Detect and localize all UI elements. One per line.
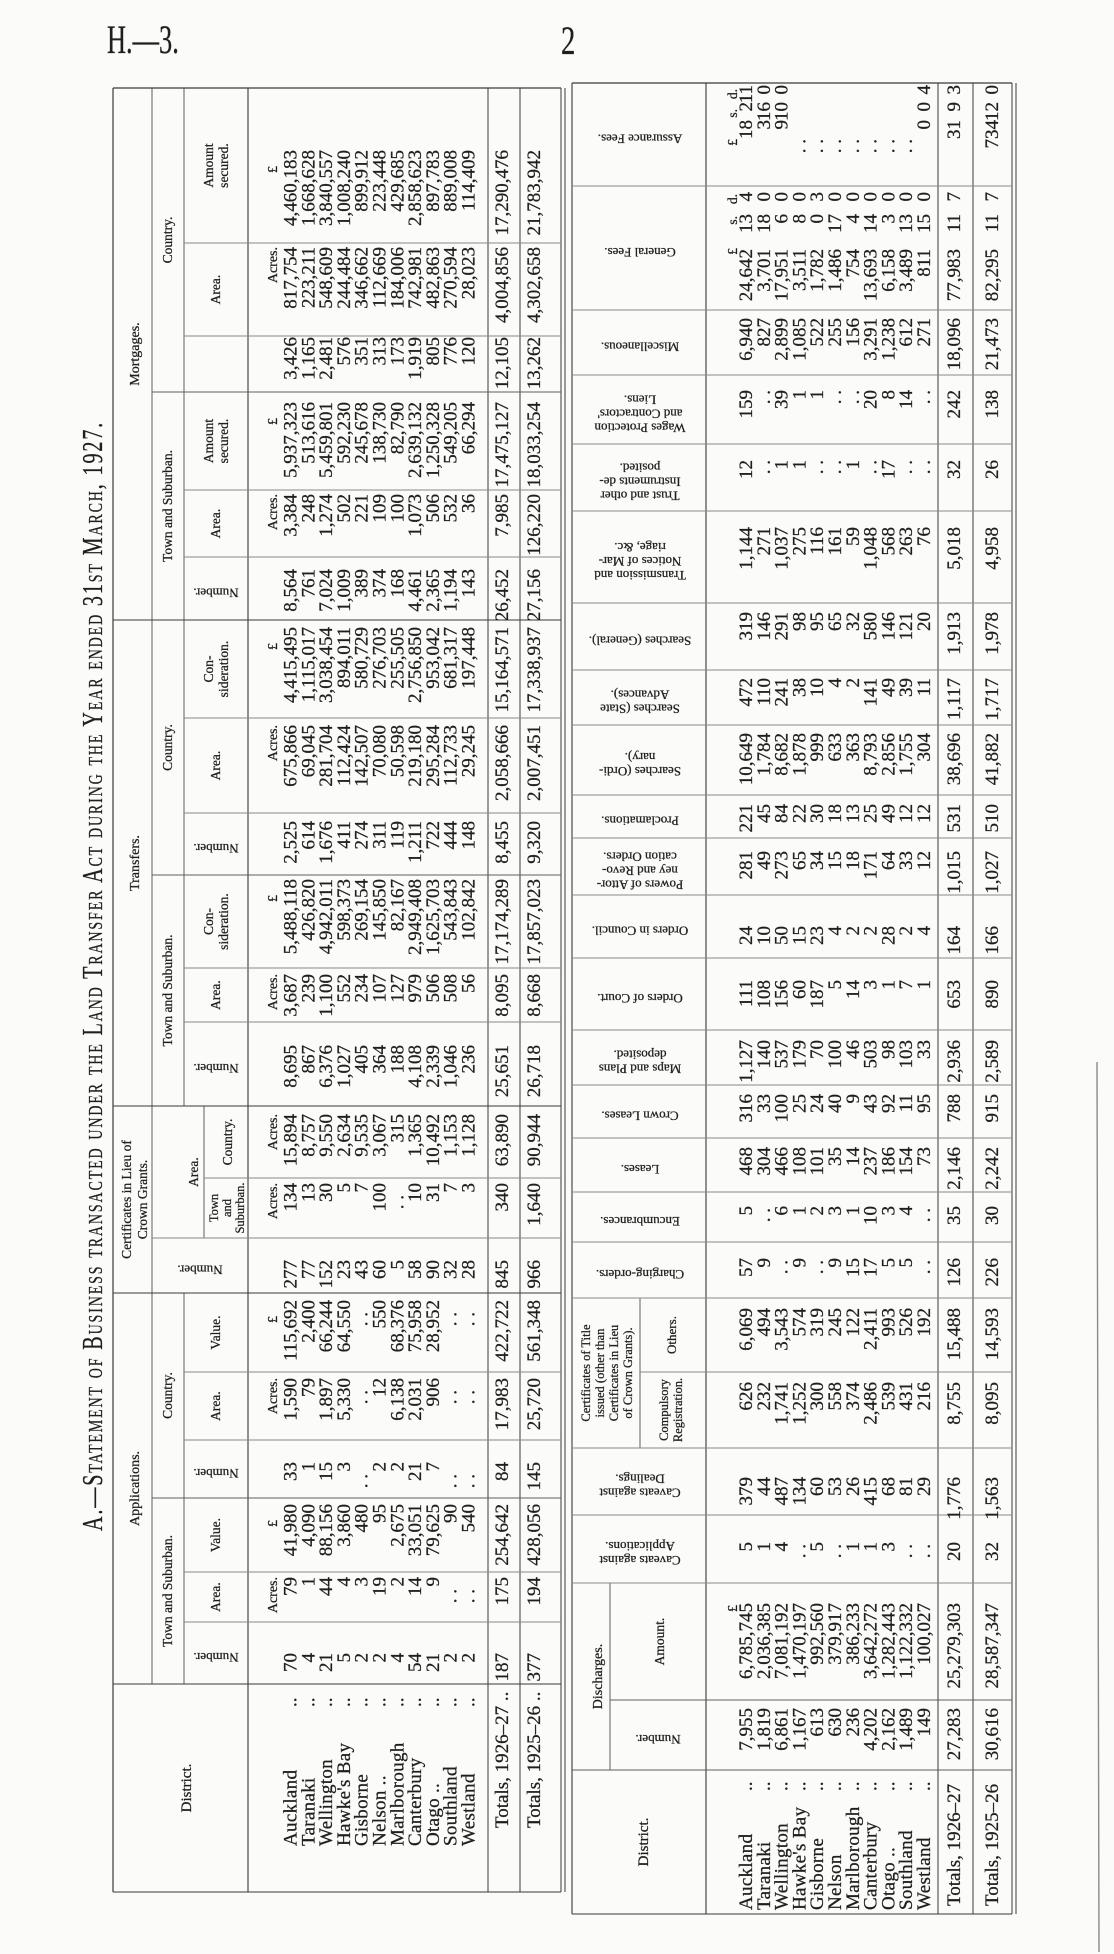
svg-text:27,156: 27,156 <box>524 569 545 621</box>
svg-text:2,936: 2,936 <box>944 1040 965 1083</box>
svg-text:Amount.: Amount. <box>652 1618 667 1666</box>
svg-text:Con-: Con- <box>201 907 216 935</box>
svg-text:Area.: Area. <box>208 509 223 539</box>
svg-text:166: 166 <box>982 926 1003 955</box>
svg-text:A.—Statement of Business trans: A.—Statement of Business transacted unde… <box>78 421 109 1531</box>
svg-text:District.: District. <box>179 1764 195 1813</box>
svg-text:2: 2 <box>561 18 575 63</box>
svg-text:Orders in Council.: Orders in Council. <box>592 924 688 939</box>
svg-text:Miscellaneous.: Miscellaneous. <box>601 340 679 355</box>
svg-text:11: 11 <box>914 678 935 696</box>
svg-text:posited.: posited. <box>620 461 661 476</box>
svg-text:11: 11 <box>982 214 1003 232</box>
svg-text:2,589: 2,589 <box>982 1040 1003 1083</box>
svg-text:Crown Grants.: Crown Grants. <box>135 1160 150 1240</box>
svg-text:31: 31 <box>944 120 965 139</box>
svg-text:26: 26 <box>982 460 1003 479</box>
svg-text:8,455: 8,455 <box>492 821 513 864</box>
svg-text:Charging-orders.: Charging-orders. <box>596 1267 684 1282</box>
svg-text:18,033,254: 18,033,254 <box>524 402 545 488</box>
svg-text:1,015: 1,015 <box>944 851 965 894</box>
svg-text:15,488: 15,488 <box>944 1308 965 1360</box>
svg-text:..: .. <box>914 1782 935 1792</box>
svg-text:175: 175 <box>492 1577 513 1606</box>
svg-text:8,668: 8,668 <box>524 974 545 1017</box>
svg-text:£: £ <box>266 643 281 650</box>
svg-text:194: 194 <box>524 1577 545 1606</box>
svg-text:0: 0 <box>914 102 935 112</box>
svg-text:. .: . . <box>459 1474 480 1488</box>
svg-text:Orders of Court.: Orders of Court. <box>597 991 683 1006</box>
svg-text:£: £ <box>266 418 281 425</box>
svg-text:1,978: 1,978 <box>982 612 1003 655</box>
svg-text:7: 7 <box>944 192 965 202</box>
svg-text:12: 12 <box>914 804 935 823</box>
svg-text:Number.: Number. <box>177 1263 222 1278</box>
svg-text:1: 1 <box>914 980 935 990</box>
svg-text:Transfers.: Transfers. <box>128 835 143 891</box>
svg-text:Acres.: Acres. <box>266 1378 281 1414</box>
svg-text:secured.: secured. <box>216 419 231 464</box>
svg-text:35: 35 <box>944 1206 965 1225</box>
svg-text:Maps and Plans: Maps and Plans <box>599 1062 681 1077</box>
svg-text:811: 811 <box>914 249 935 277</box>
svg-text:Area.: Area. <box>208 1582 223 1612</box>
svg-text:20: 20 <box>914 612 935 631</box>
svg-text:of Crown Grants).: of Crown Grants). <box>621 1327 635 1418</box>
svg-text:1,913: 1,913 <box>944 612 965 655</box>
svg-text:ney and Revo-: ney and Revo- <box>602 864 678 879</box>
svg-text:Number.: Number. <box>193 1650 238 1665</box>
svg-text:271: 271 <box>914 318 935 347</box>
svg-text:510: 510 <box>982 804 1003 833</box>
svg-text:1,027: 1,027 <box>982 851 1003 894</box>
svg-text:Town and Suburban.: Town and Suburban. <box>160 935 175 1047</box>
svg-text:8,095: 8,095 <box>982 1382 1003 1425</box>
svg-text:Instruments de-: Instruments de- <box>599 475 680 490</box>
svg-text:Wages Protection: Wages Protection <box>594 421 686 436</box>
svg-text:540: 540 <box>459 1504 480 1533</box>
svg-text:73: 73 <box>914 1147 935 1166</box>
svg-text:82,295: 82,295 <box>982 249 1003 301</box>
svg-text:Totals, 1926–27: Totals, 1926–27 <box>944 1784 965 1906</box>
svg-text:17,983: 17,983 <box>492 1378 513 1430</box>
svg-text:Number.: Number. <box>193 1466 238 1481</box>
svg-text:Liens.: Liens. <box>624 393 656 408</box>
svg-text:cation Orders.: cation Orders. <box>603 850 677 865</box>
svg-text:. .: . . <box>896 139 917 153</box>
svg-text:788: 788 <box>944 1094 965 1123</box>
svg-text:126: 126 <box>944 1258 965 1287</box>
svg-text:304: 304 <box>914 733 935 762</box>
svg-text:Totals, 1925–26: Totals, 1925–26 <box>982 1784 1003 1906</box>
svg-text:9: 9 <box>944 102 965 112</box>
svg-text:915: 915 <box>982 1094 1003 1123</box>
svg-text:653: 653 <box>944 980 965 1009</box>
svg-text:sideration.: sideration. <box>216 641 231 698</box>
svg-text:149: 149 <box>914 1708 935 1737</box>
svg-text:Advances).: Advances). <box>611 688 670 703</box>
svg-text:100,027: 100,027 <box>914 1603 935 1665</box>
svg-text:76: 76 <box>914 527 935 546</box>
svg-text:£: £ <box>266 1520 281 1527</box>
svg-text:102,842: 102,842 <box>459 879 480 941</box>
svg-text:Area.: Area. <box>186 1157 201 1187</box>
svg-text:Crown Leases.: Crown Leases. <box>601 1109 678 1124</box>
svg-text:Amount: Amount <box>201 419 216 464</box>
svg-text:216: 216 <box>914 1382 935 1411</box>
svg-text:1,563: 1,563 <box>982 1477 1003 1520</box>
svg-text:242: 242 <box>944 390 965 419</box>
svg-text:Totals, 1925–26 ..: Totals, 1925–26 .. <box>524 1692 545 1828</box>
svg-text:138: 138 <box>982 390 1003 419</box>
svg-text:7: 7 <box>423 1462 444 1472</box>
svg-text:28,023: 28,023 <box>459 247 480 299</box>
svg-text:riage, &c.: riage, &c. <box>614 540 666 555</box>
svg-text:. .: . . <box>914 1260 935 1274</box>
svg-text:890: 890 <box>982 980 1003 1009</box>
svg-text:21,473: 21,473 <box>982 318 1003 370</box>
svg-text:. .: . . <box>914 1544 935 1558</box>
svg-text:2,007,451: 2,007,451 <box>524 725 545 801</box>
svg-text:Searches (General).: Searches (General). <box>589 634 692 649</box>
svg-text:56: 56 <box>459 974 480 993</box>
svg-text:27,283: 27,283 <box>944 1708 965 1760</box>
svg-text:. .: . . <box>914 1208 935 1222</box>
svg-text:Town and Suburban.: Town and Suburban. <box>160 450 175 562</box>
svg-text:Leases.: Leases. <box>621 1162 660 1177</box>
svg-text:£: £ <box>266 1316 281 1323</box>
svg-text:126,220: 126,220 <box>524 494 545 556</box>
svg-text:Applications.: Applications. <box>128 1451 143 1526</box>
svg-text:Country.: Country. <box>160 724 175 771</box>
svg-text:12: 12 <box>982 102 1003 121</box>
svg-text:Discharges.: Discharges. <box>591 1644 606 1709</box>
svg-text:114,409: 114,409 <box>459 150 480 211</box>
svg-text:deposited.: deposited. <box>613 1048 666 1063</box>
svg-text:£: £ <box>266 166 281 173</box>
svg-text:9: 9 <box>423 1577 444 1587</box>
svg-text:2,146: 2,146 <box>944 1147 965 1190</box>
svg-text:29: 29 <box>914 1477 935 1496</box>
svg-text:7: 7 <box>982 192 1003 202</box>
svg-text:20: 20 <box>944 1542 965 1561</box>
svg-text:145: 145 <box>524 1462 545 1491</box>
svg-text:nary).: nary). <box>625 750 656 765</box>
svg-text:14,593: 14,593 <box>982 1308 1003 1360</box>
svg-text:148: 148 <box>459 821 480 850</box>
svg-text:187: 187 <box>492 1653 513 1682</box>
svg-text:41,882: 41,882 <box>982 733 1003 785</box>
svg-text:4: 4 <box>914 926 935 936</box>
svg-text:17,290,476: 17,290,476 <box>492 150 513 236</box>
svg-text:226: 226 <box>982 1258 1003 1287</box>
svg-text:Acres.: Acres. <box>266 974 281 1010</box>
svg-text:15,164,571: 15,164,571 <box>492 627 513 713</box>
svg-text:734: 734 <box>982 120 1003 149</box>
svg-text:Dealings.: Dealings. <box>615 1472 664 1487</box>
svg-text:4,958: 4,958 <box>982 527 1003 570</box>
svg-text:9,320: 9,320 <box>524 821 545 864</box>
svg-text:4: 4 <box>914 85 935 95</box>
svg-text:General Fees.: General Fees. <box>604 245 675 260</box>
svg-text:32: 32 <box>982 1542 1003 1561</box>
svg-text:District.: District. <box>636 1818 652 1867</box>
svg-text:Country.: Country. <box>160 217 175 264</box>
svg-text:422,722: 422,722 <box>492 1300 513 1362</box>
svg-text:66,294: 66,294 <box>459 402 480 455</box>
svg-text:1,640: 1,640 <box>524 1183 545 1226</box>
svg-text:7,985: 7,985 <box>492 494 513 537</box>
svg-text:63,890: 63,890 <box>492 1114 513 1166</box>
svg-text:1,717: 1,717 <box>982 678 1003 721</box>
svg-text:25,720: 25,720 <box>524 1378 545 1430</box>
svg-text:Mortgages.: Mortgages. <box>128 322 143 385</box>
svg-text:4,302,658: 4,302,658 <box>524 247 545 323</box>
svg-text:2,242: 2,242 <box>982 1147 1003 1190</box>
svg-text:30: 30 <box>982 1206 1003 1225</box>
svg-text:197,448: 197,448 <box>459 627 480 689</box>
svg-text:340: 340 <box>492 1183 513 1212</box>
svg-text:1,776: 1,776 <box>944 1477 965 1520</box>
svg-text:8,095: 8,095 <box>492 974 513 1017</box>
svg-text:95: 95 <box>914 1094 935 1113</box>
svg-text:Amount: Amount <box>201 143 216 188</box>
svg-text:36: 36 <box>459 494 480 513</box>
svg-text:Number.: Number. <box>193 586 238 601</box>
svg-text:77,983: 77,983 <box>944 249 965 301</box>
svg-text:Searches (Ordi-: Searches (Ordi- <box>599 764 681 779</box>
svg-text:13,262: 13,262 <box>524 337 545 389</box>
svg-text:Town: Town <box>207 1193 221 1222</box>
svg-text:Suburban.: Suburban. <box>233 1182 247 1233</box>
svg-text:0: 0 <box>982 85 1003 95</box>
svg-text:25,279,303: 25,279,303 <box>944 1603 965 1689</box>
svg-text:21,783,942: 21,783,942 <box>524 150 545 236</box>
svg-text:561,348: 561,348 <box>524 1300 545 1362</box>
svg-text:. .: . . <box>352 1474 373 1488</box>
svg-text:12: 12 <box>914 851 935 870</box>
svg-text:Powers of Attor-: Powers of Attor- <box>597 878 683 893</box>
svg-text:. .: . . <box>914 390 935 404</box>
svg-text:..: .. <box>459 1698 480 1708</box>
svg-text:2: 2 <box>459 1653 480 1663</box>
svg-text:Trust and other: Trust and other <box>600 489 680 504</box>
svg-text:Others.: Others. <box>664 1316 679 1354</box>
svg-text:3: 3 <box>459 1183 480 1193</box>
svg-text:0: 0 <box>772 85 793 95</box>
svg-text:Registration.: Registration. <box>671 1378 685 1442</box>
svg-text:Assurance Fees.: Assurance Fees. <box>598 132 682 147</box>
svg-text:192: 192 <box>914 1308 935 1337</box>
svg-text:377: 377 <box>524 1653 545 1682</box>
svg-text:0: 0 <box>914 120 935 130</box>
svg-text:. .: . . <box>459 1390 480 1404</box>
svg-text:and: and <box>220 1198 234 1217</box>
svg-text:Applications.: Applications. <box>605 1539 675 1554</box>
svg-text:3: 3 <box>334 1462 355 1472</box>
svg-text:120: 120 <box>459 337 480 366</box>
svg-text:Encumbrances.: Encumbrances. <box>600 1214 680 1229</box>
svg-text:0: 0 <box>914 192 935 202</box>
svg-text:Certificates in Lieu: Certificates in Lieu <box>607 1324 621 1421</box>
svg-text:sideration.: sideration. <box>216 893 231 950</box>
svg-text:90,944: 90,944 <box>524 1114 545 1167</box>
svg-text:. .: . . <box>914 460 935 474</box>
svg-text:H.—3.: H.—3. <box>107 19 179 63</box>
svg-text:Area.: Area. <box>208 275 223 305</box>
svg-text:Caveats against: Caveats against <box>599 1553 681 1568</box>
svg-text:236: 236 <box>459 1045 480 1074</box>
svg-text:Acres.: Acres. <box>266 247 281 283</box>
svg-text:Country.: Country. <box>160 1372 175 1419</box>
svg-text:Acres.: Acres. <box>266 494 281 530</box>
svg-text:Caveats against: Caveats against <box>599 1486 681 1501</box>
svg-text:18,096: 18,096 <box>944 318 965 370</box>
svg-text:Certificates of Title: Certificates of Title <box>579 1324 593 1422</box>
svg-text:84: 84 <box>492 1462 513 1482</box>
svg-text:1,117: 1,117 <box>944 678 965 720</box>
svg-text:17,174,289: 17,174,289 <box>492 879 513 965</box>
svg-text:11: 11 <box>944 214 965 232</box>
svg-text:3: 3 <box>944 85 965 95</box>
svg-text:Con-: Con- <box>201 655 216 683</box>
svg-text:Compulsory: Compulsory <box>657 1378 671 1441</box>
svg-text:Westland: Westland <box>459 1773 480 1846</box>
svg-text:12,105: 12,105 <box>492 337 513 389</box>
svg-text:28,587,347: 28,587,347 <box>982 1603 1003 1689</box>
svg-text:Totals, 1926–27 ..: Totals, 1926–27 .. <box>492 1692 513 1828</box>
svg-text:26,452: 26,452 <box>492 569 513 621</box>
svg-text:32: 32 <box>944 460 965 479</box>
svg-text:10: 10 <box>772 102 793 121</box>
svg-text:Searches (State: Searches (State <box>600 702 680 717</box>
svg-text:28: 28 <box>459 1260 480 1279</box>
svg-text:and Contractors': and Contractors' <box>597 407 682 422</box>
svg-text:Notices of Mar-: Notices of Mar- <box>599 554 682 569</box>
svg-text:Acres.: Acres. <box>266 1183 281 1219</box>
svg-text:Area.: Area. <box>208 751 223 781</box>
svg-text:Town and Suburban.: Town and Suburban. <box>160 1535 175 1647</box>
svg-text:1,128: 1,128 <box>459 1114 480 1157</box>
svg-text:secured.: secured. <box>216 143 231 188</box>
svg-text:Number.: Number. <box>193 1061 238 1076</box>
svg-text:Value.: Value. <box>208 1315 223 1349</box>
svg-text:Area.: Area. <box>208 1391 223 1421</box>
svg-text:Number.: Number. <box>193 841 238 856</box>
svg-text:Westland: Westland <box>914 1837 935 1910</box>
svg-text:£: £ <box>266 895 281 902</box>
svg-text:Transmission and: Transmission and <box>594 568 686 583</box>
svg-text:4,004,856: 4,004,856 <box>492 247 513 323</box>
svg-text:30,616: 30,616 <box>982 1708 1003 1760</box>
svg-text:. .: . . <box>459 1589 480 1603</box>
svg-text:531: 531 <box>944 804 965 833</box>
svg-text:143: 143 <box>459 569 480 598</box>
svg-text:Acres.: Acres. <box>266 725 281 761</box>
svg-text:254,642: 254,642 <box>492 1504 513 1566</box>
svg-text:2,058,666: 2,058,666 <box>492 725 513 801</box>
svg-text:17,475,127: 17,475,127 <box>492 402 513 488</box>
svg-text:Certificates in Lieu of: Certificates in Lieu of <box>119 1140 134 1259</box>
svg-text:38,696: 38,696 <box>944 733 965 785</box>
svg-text:845: 845 <box>492 1260 513 1289</box>
svg-text:5,018: 5,018 <box>944 527 965 570</box>
svg-text:33: 33 <box>914 1040 935 1059</box>
svg-text:966: 966 <box>524 1260 545 1289</box>
svg-text:Acres.: Acres. <box>266 1577 281 1613</box>
svg-text:Acres.: Acres. <box>266 1114 281 1150</box>
svg-text:Proclamations.: Proclamations. <box>601 814 679 829</box>
svg-text:15: 15 <box>914 214 935 233</box>
svg-text:17,857,023: 17,857,023 <box>524 879 545 965</box>
svg-text:Value.: Value. <box>208 1518 223 1552</box>
svg-text:26,718: 26,718 <box>524 1045 545 1097</box>
svg-text:428,056: 428,056 <box>524 1504 545 1566</box>
svg-text:8,755: 8,755 <box>944 1382 965 1425</box>
svg-text:164: 164 <box>944 926 965 955</box>
svg-text:17,338,937: 17,338,937 <box>524 627 545 713</box>
svg-text:Area.: Area. <box>208 980 223 1010</box>
svg-text:29,245: 29,245 <box>459 725 480 777</box>
svg-text:25,651: 25,651 <box>492 1045 513 1097</box>
svg-text:Number.: Number. <box>635 1732 680 1747</box>
svg-text:. .: . . <box>459 1312 480 1326</box>
svg-text:Country.: Country. <box>220 1119 235 1166</box>
svg-text:issued (other than: issued (other than <box>593 1328 607 1418</box>
